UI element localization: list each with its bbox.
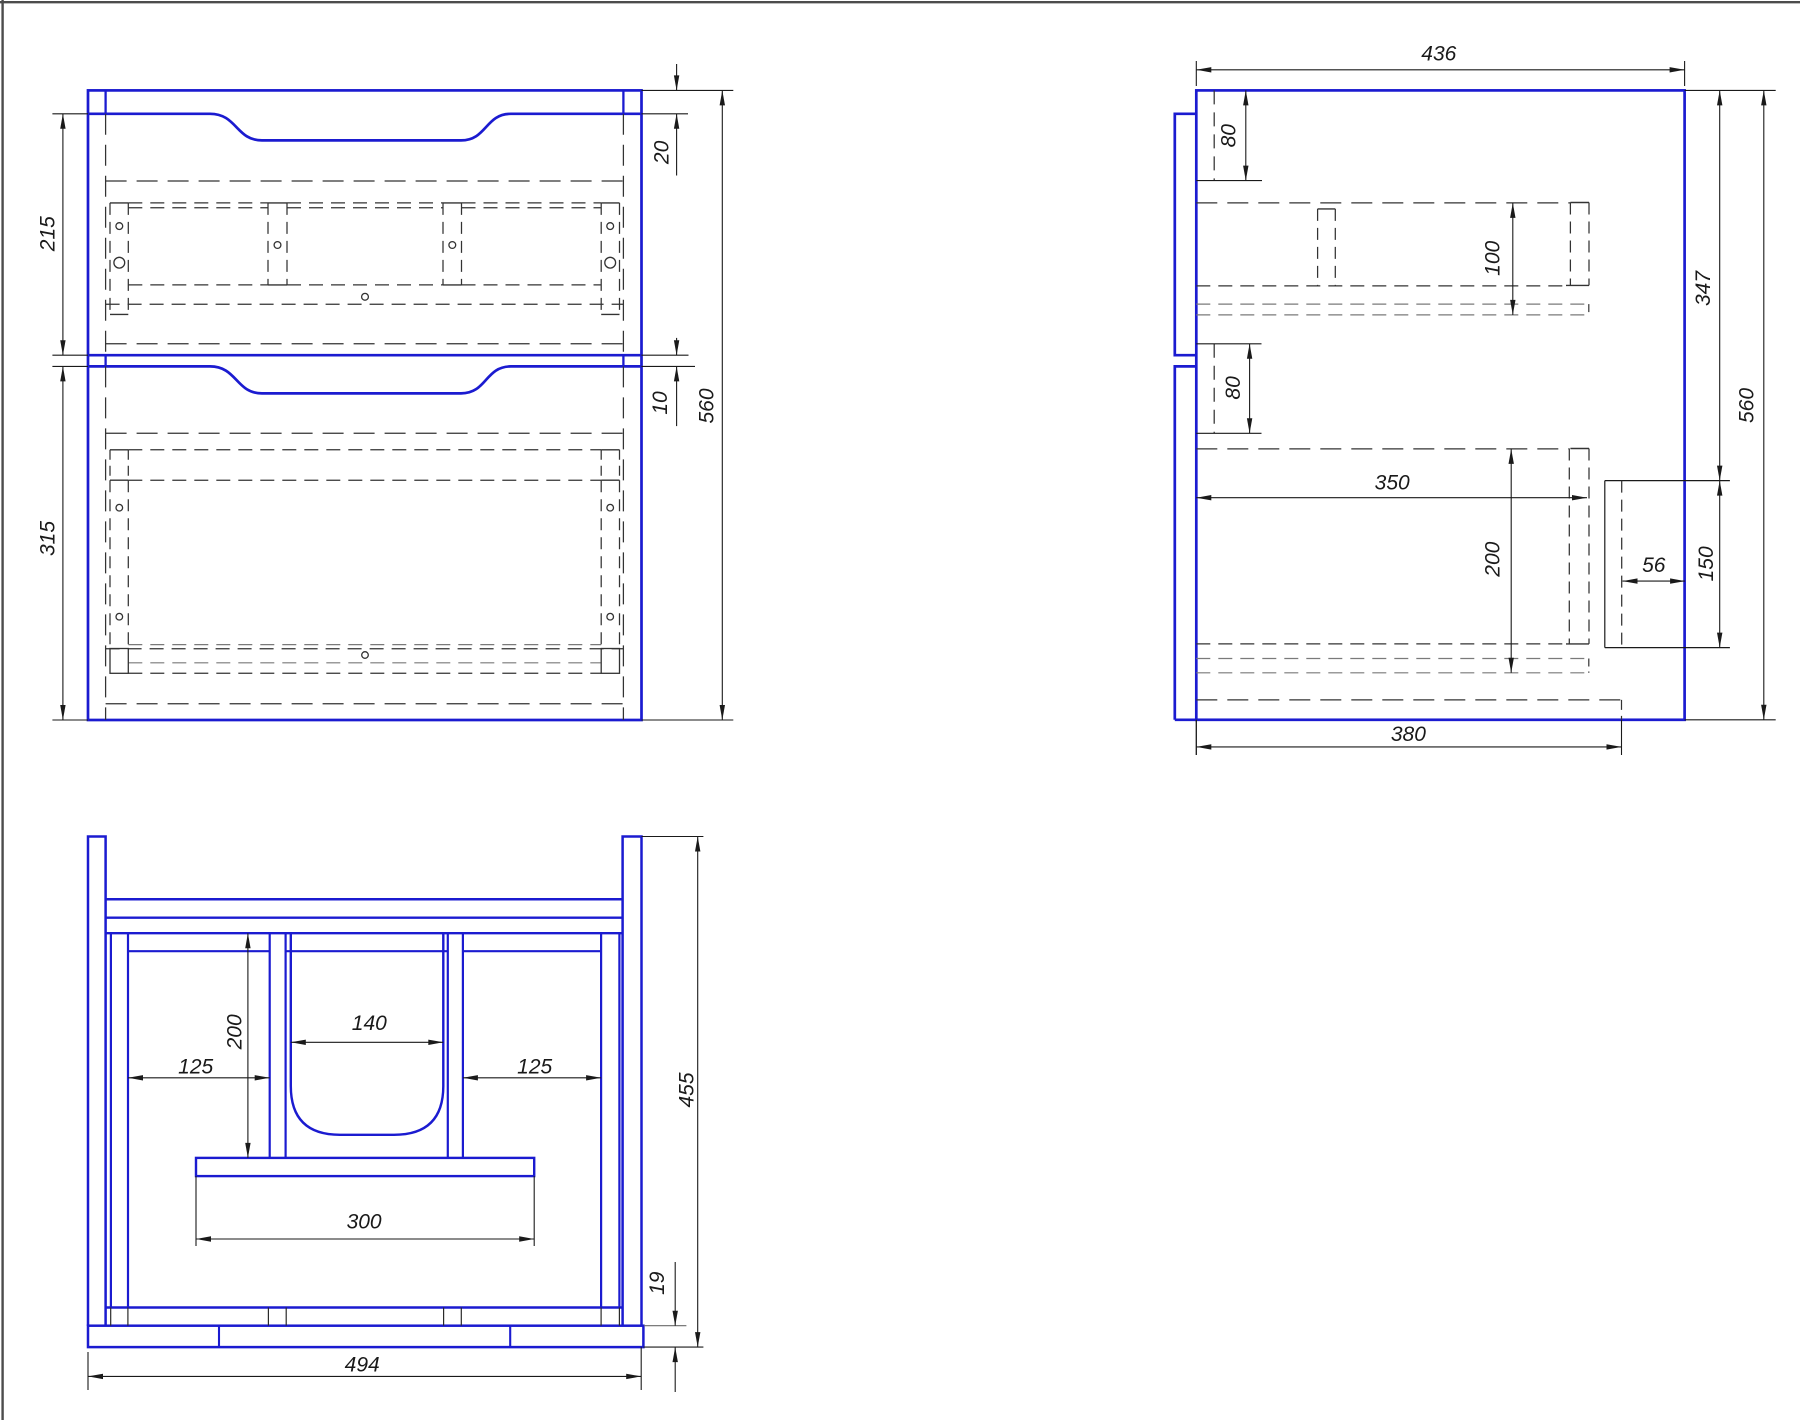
svg-text:347: 347 (1692, 270, 1715, 306)
svg-text:315: 315 (37, 521, 60, 556)
svg-text:436: 436 (1421, 43, 1456, 66)
svg-text:80: 80 (1218, 124, 1241, 148)
svg-text:19: 19 (646, 1271, 669, 1295)
svg-text:140: 140 (352, 1012, 387, 1035)
svg-text:560: 560 (1736, 388, 1759, 423)
svg-text:125: 125 (178, 1056, 213, 1079)
svg-text:80: 80 (1222, 376, 1245, 400)
svg-text:350: 350 (1375, 472, 1410, 495)
svg-text:380: 380 (1391, 723, 1426, 746)
svg-text:215: 215 (37, 216, 60, 252)
svg-text:455: 455 (676, 1072, 699, 1107)
svg-text:100: 100 (1481, 240, 1504, 275)
svg-text:560: 560 (696, 388, 719, 423)
svg-text:300: 300 (347, 1211, 382, 1234)
svg-text:20: 20 (651, 140, 674, 165)
svg-text:125: 125 (517, 1056, 552, 1079)
svg-text:150: 150 (1695, 546, 1718, 581)
svg-text:494: 494 (345, 1353, 380, 1376)
svg-text:10: 10 (649, 391, 672, 415)
svg-text:56: 56 (1642, 554, 1666, 577)
svg-text:200: 200 (1481, 541, 1504, 577)
svg-text:200: 200 (223, 1014, 246, 1050)
